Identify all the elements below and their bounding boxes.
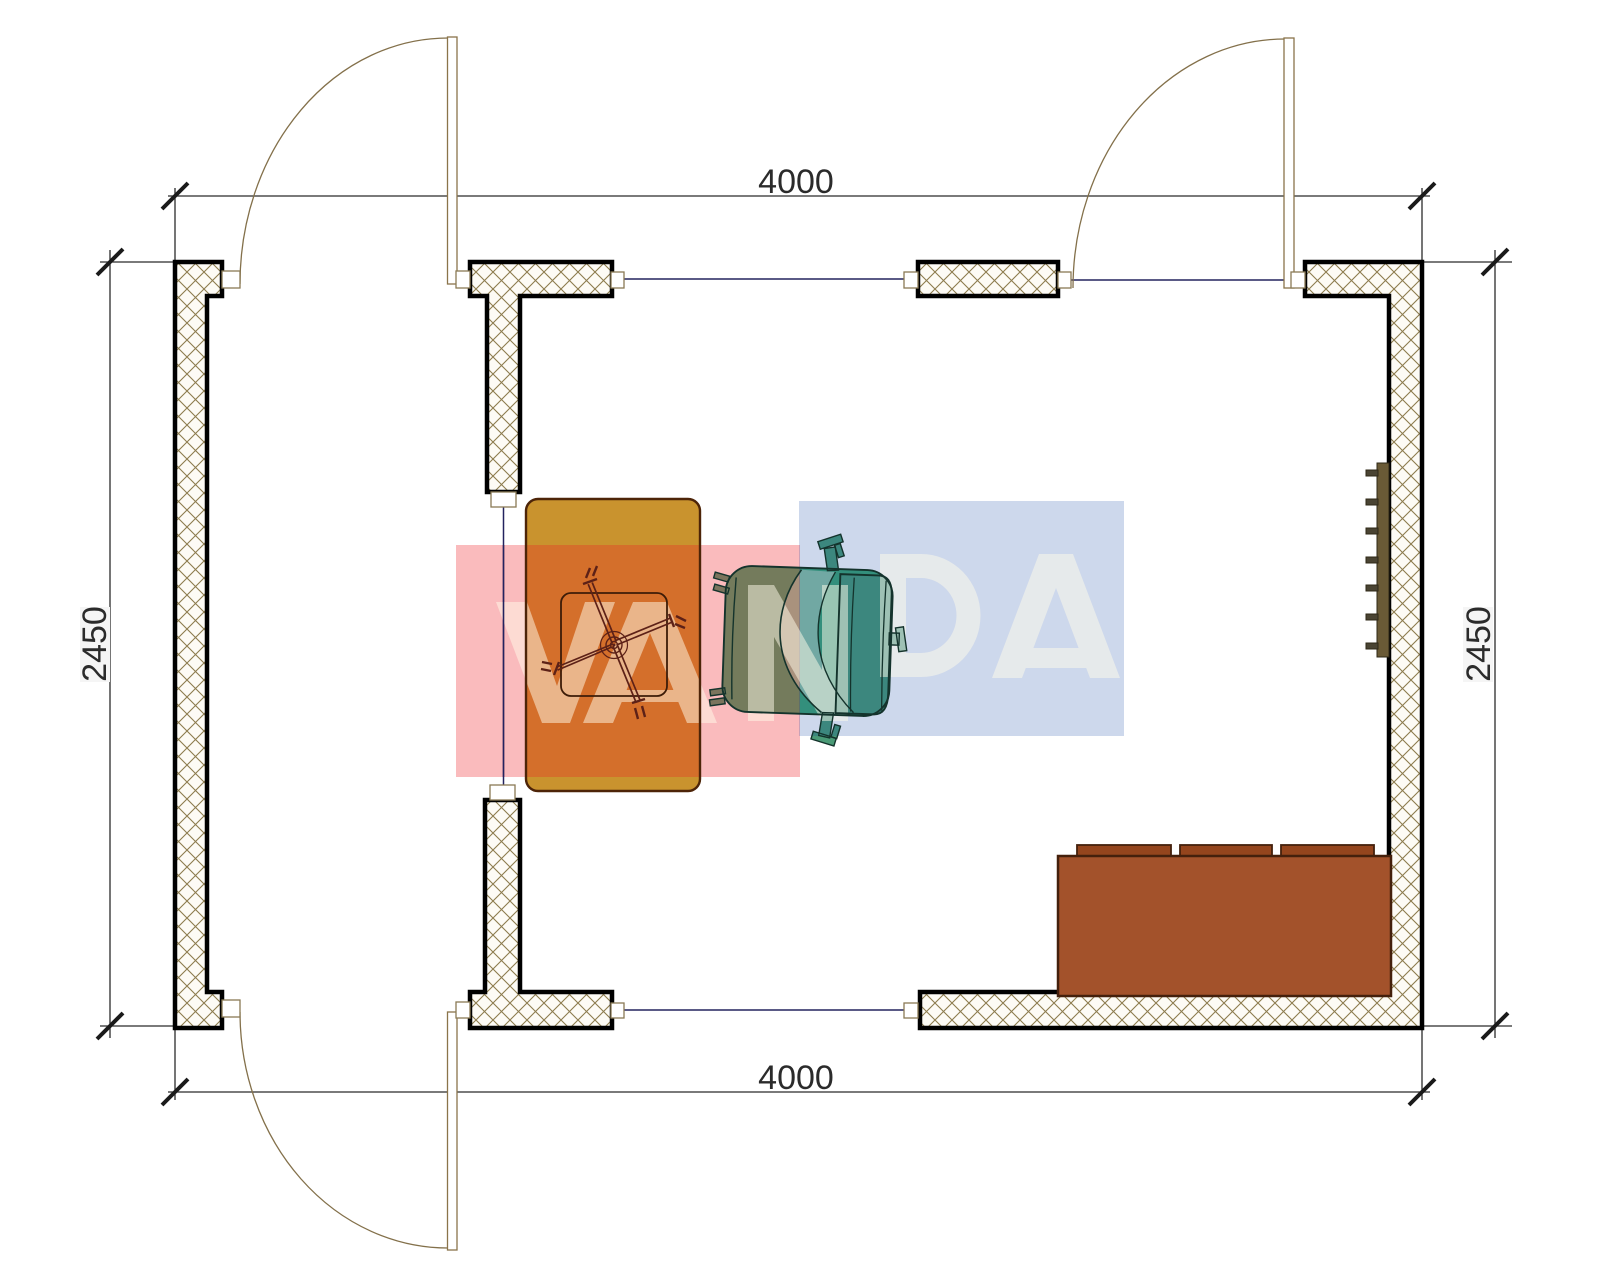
- svg-text:4000: 4000: [758, 163, 834, 201]
- svg-text:4000: 4000: [758, 1059, 834, 1097]
- svg-text:2450: 2450: [1460, 606, 1498, 682]
- svg-text:2450: 2450: [76, 606, 114, 682]
